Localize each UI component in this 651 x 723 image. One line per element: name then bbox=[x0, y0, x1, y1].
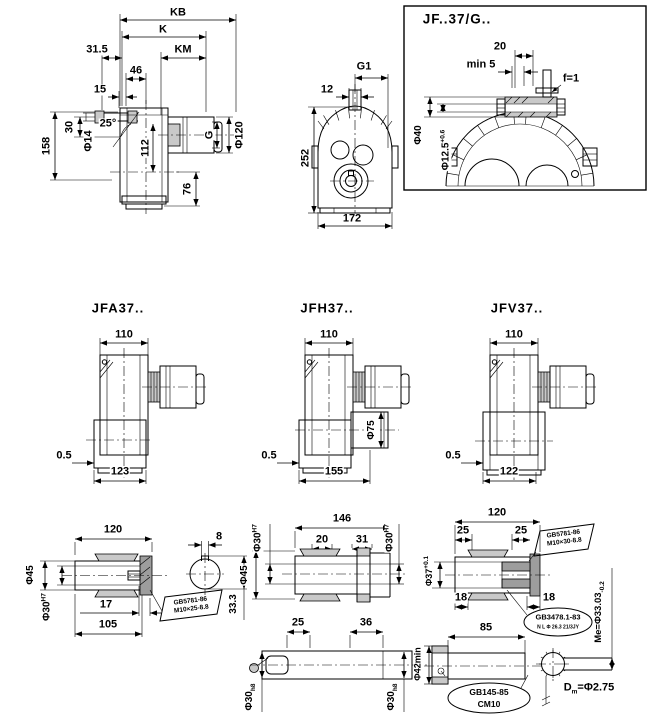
sr-dim-120-label: 120 bbox=[487, 508, 507, 519]
dim-phi120-label: Φ120 bbox=[235, 120, 246, 149]
dim-172-label: 172 bbox=[342, 214, 362, 225]
sl-dim-8-label: 8 bbox=[215, 532, 223, 543]
jfa37-title: JFA37.. bbox=[91, 302, 146, 315]
sr-center-callout-line2: CM10 bbox=[478, 700, 501, 709]
sr-dim-85-label: 85 bbox=[479, 623, 493, 634]
sr-dim-18a-label: 18 bbox=[454, 593, 468, 604]
jfv37-view bbox=[461, 338, 598, 484]
sl-dim-phi45-label: Φ45 bbox=[26, 564, 36, 585]
sm-dim-phi30h8-right-label: Φ30h8 bbox=[387, 683, 400, 712]
sm-dim-146-label: 146 bbox=[332, 514, 352, 525]
sl-dim-105-label: 105 bbox=[98, 620, 118, 631]
sr-dim-phi42min-label: Φ42min bbox=[414, 646, 423, 681]
dim-g-label: G bbox=[205, 130, 216, 141]
jfv-dim-122-label: 122 bbox=[499, 467, 519, 478]
sr-dim-18b-label: 18 bbox=[542, 593, 556, 604]
dim-76-label: 76 bbox=[183, 182, 194, 196]
dim-25deg-label: 25° bbox=[99, 119, 118, 130]
dim-30-label: 30 bbox=[65, 120, 76, 134]
jfv-dim-110-label: 110 bbox=[504, 330, 524, 341]
dim-g1-label: G1 bbox=[356, 62, 373, 73]
dim-158-label: 158 bbox=[42, 136, 53, 156]
sr-dim-phi37-label: Φ37+0.1 bbox=[424, 555, 434, 587]
sm-dim-36-label: 36 bbox=[359, 618, 373, 629]
detail-box-title: JF..37/G.. bbox=[422, 12, 493, 26]
sl-dim-17-label: 17 bbox=[99, 600, 113, 611]
jfa-dim-05-label: 0.5 bbox=[55, 451, 72, 462]
jfv37-title: JFV37.. bbox=[490, 302, 545, 315]
sm-dim-phi45-label: Φ45 bbox=[240, 564, 250, 585]
sl-dim-phi30h7-label: Φ30H7 bbox=[42, 592, 53, 622]
dim-46-label: 46 bbox=[129, 66, 143, 77]
jfh-dim-05-label: 0.5 bbox=[260, 451, 277, 462]
dim-k-label: K bbox=[158, 25, 168, 36]
dim-km-label: KM bbox=[173, 45, 192, 56]
sr-dim-25b-label: 25 bbox=[514, 526, 528, 537]
dim-252-label: 252 bbox=[301, 148, 312, 168]
dim-phi40-label: Φ40 bbox=[414, 124, 424, 145]
jfh-dim-phi75-label: Φ75 bbox=[367, 419, 377, 440]
sm-dim-phi30h7-left-label: Φ30H7 bbox=[253, 523, 264, 553]
jfh-dim-110-label: 110 bbox=[319, 330, 339, 341]
sm-dim-phi30h7-right-label: Φ30H7 bbox=[385, 523, 396, 553]
sr-center-callout-line1: GB145-85 bbox=[469, 688, 508, 697]
drawing-sheet: KB K 31.5 KM 46 15 25° Φ14 30 158 112 76… bbox=[0, 0, 651, 723]
dim-phi14-label: Φ14 bbox=[84, 129, 95, 152]
sr-dim-me-label: Me=Φ33.03-0.2 bbox=[594, 580, 607, 644]
jfa37-view bbox=[72, 338, 208, 484]
sl-dim-120-label: 120 bbox=[103, 525, 123, 536]
dim-31-5-label: 31.5 bbox=[85, 45, 108, 56]
sr-spline-callout-line1: GB3478.1-83 bbox=[535, 613, 580, 621]
sl-dim-33-3-label: 33.3 bbox=[229, 593, 239, 614]
sm-dim-20-label: 20 bbox=[315, 535, 329, 546]
top-side-view bbox=[50, 14, 236, 214]
sm-dim-31-label: 31 bbox=[355, 535, 369, 546]
sr-dim-dm-label: Dm=Φ2.75 bbox=[563, 682, 616, 696]
jfh37-view bbox=[277, 338, 413, 484]
top-front-view bbox=[308, 74, 398, 229]
dim-112-label: 112 bbox=[141, 138, 152, 158]
dim-20-label: 20 bbox=[493, 42, 507, 53]
dim-phi12-5-label: Φ12.5+0.6 bbox=[441, 129, 452, 172]
sr-spline-callout-line2: N L Φ 26.3 21/3JY bbox=[537, 626, 579, 631]
dim-kb-label: KB bbox=[169, 8, 187, 19]
shaft-detail-middle bbox=[250, 524, 429, 712]
jfa-dim-123-label: 123 bbox=[110, 467, 130, 478]
jfh-dim-155-label: 155 bbox=[324, 467, 344, 478]
sr-dim-25a-label: 25 bbox=[456, 526, 470, 537]
jfh37-title: JFH37.. bbox=[299, 302, 354, 315]
jfa-dim-110-label: 110 bbox=[114, 330, 134, 341]
jfv-dim-05-label: 0.5 bbox=[444, 451, 461, 462]
sm-dim-25-label: 25 bbox=[291, 618, 305, 629]
dim-min5-label: min 5 bbox=[466, 60, 497, 71]
dim-12-label: 12 bbox=[320, 85, 334, 96]
dim-15-label: 15 bbox=[93, 85, 107, 96]
sm-dim-phi30h8-left-label: Φ30h8 bbox=[245, 683, 258, 712]
shaft-detail-left bbox=[40, 539, 247, 637]
dim-f1-label: f=1 bbox=[562, 74, 580, 85]
